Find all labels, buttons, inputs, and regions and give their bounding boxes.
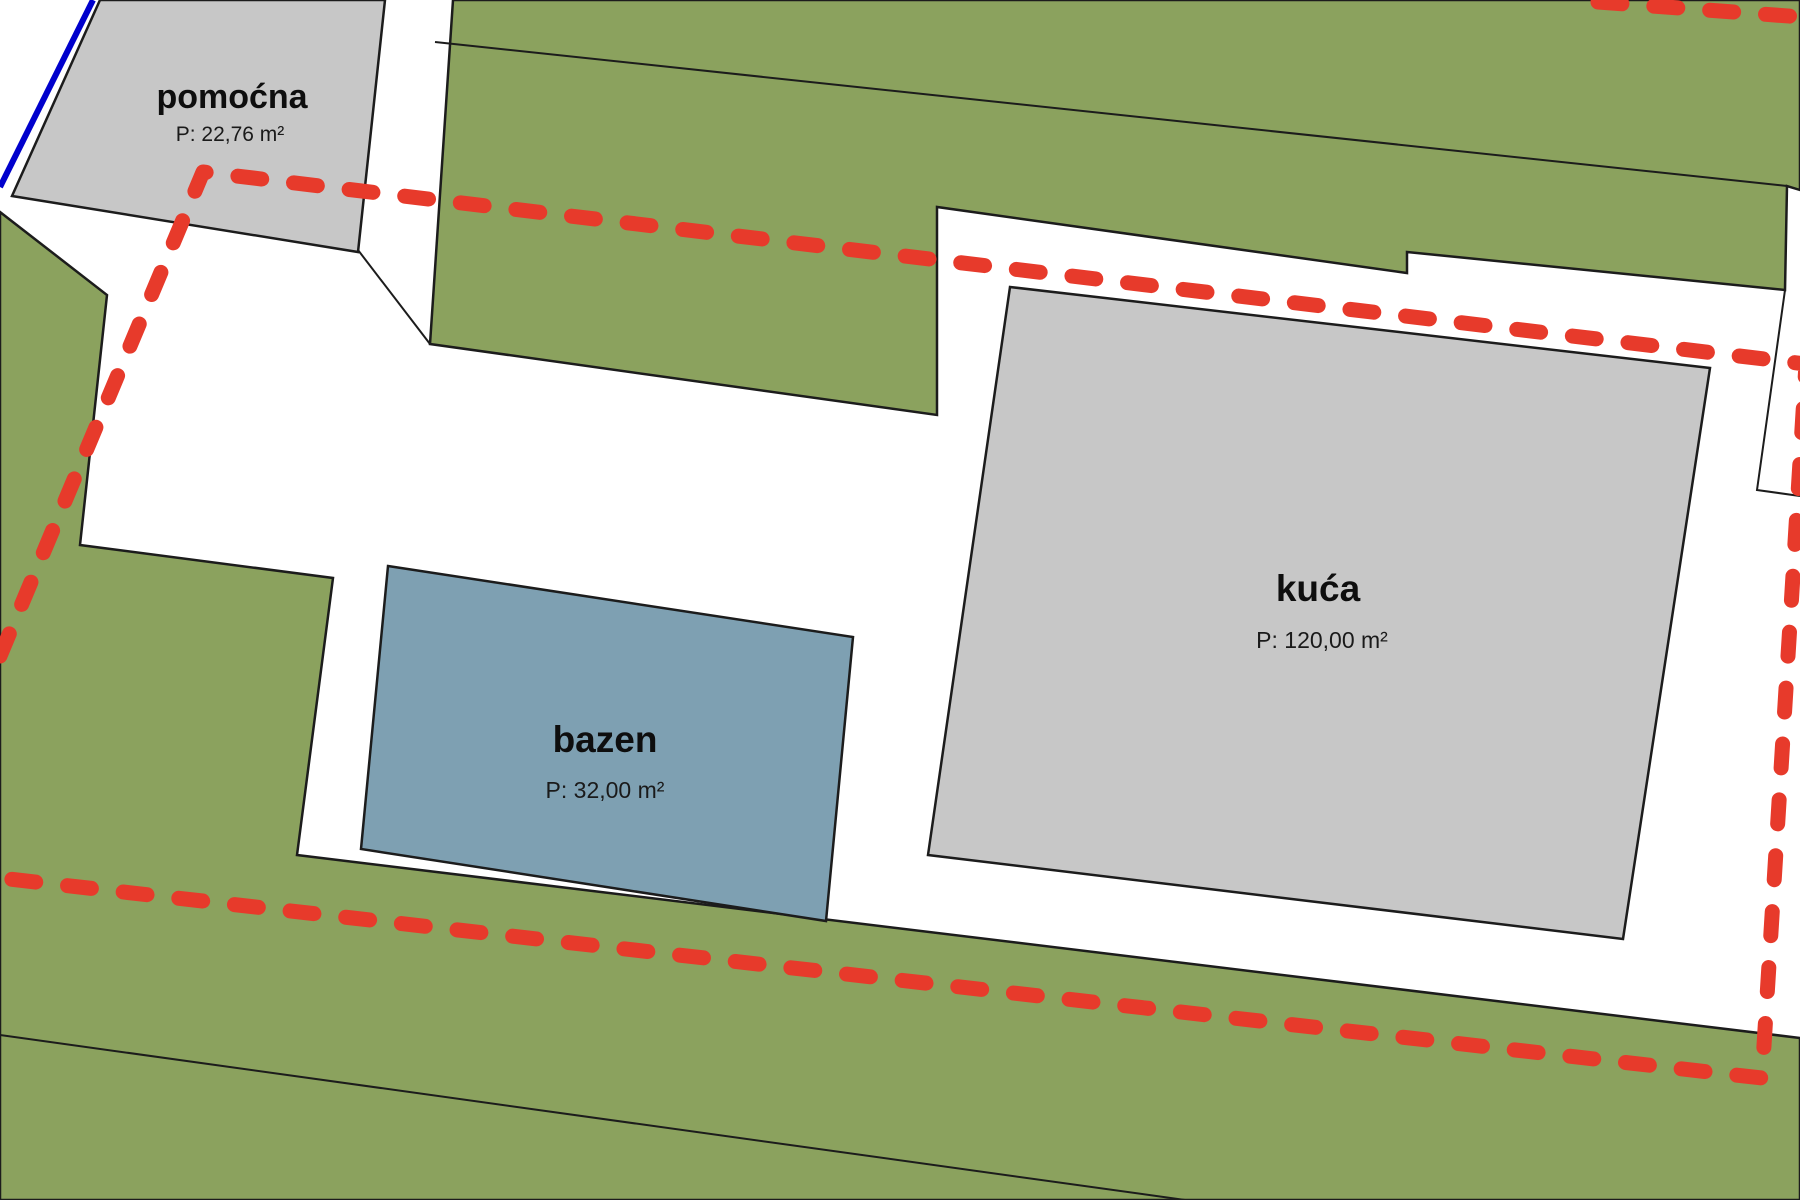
label-kuca-area: P: 120,00 m² xyxy=(1256,627,1388,653)
label-pomocna-title: pomoćna xyxy=(156,78,308,116)
label-bazen-area: P: 32,00 m² xyxy=(546,777,665,803)
label-bazen-title: bazen xyxy=(553,719,658,760)
label-pomocna-area: P: 22,76 m² xyxy=(176,123,285,146)
map-canvas: pomoćna P: 22,76 m² kuća P: 120,00 m² ba… xyxy=(0,0,1800,1200)
label-kuca-title: kuća xyxy=(1276,568,1361,609)
site-plan-map[interactable]: pomoćna P: 22,76 m² kuća P: 120,00 m² ba… xyxy=(0,0,1800,1200)
building-kuca[interactable] xyxy=(928,287,1710,939)
